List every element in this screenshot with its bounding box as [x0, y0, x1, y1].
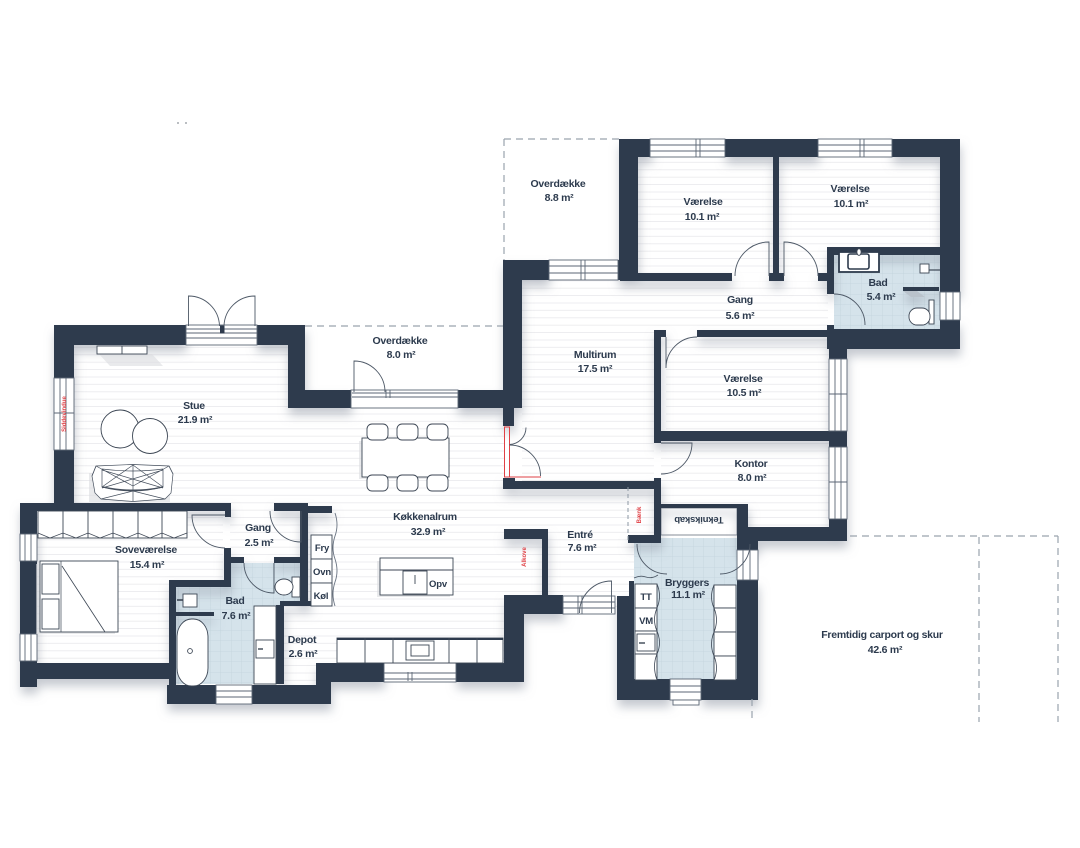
svg-text:11.1 m²: 11.1 m² — [671, 589, 706, 601]
svg-text:2.5 m²: 2.5 m² — [245, 537, 275, 549]
svg-text:Fremtidig carport og skur: Fremtidig carport og skur — [821, 629, 943, 641]
svg-text:10.1 m²: 10.1 m² — [685, 211, 720, 223]
svg-text:Stue: Stue — [183, 400, 205, 412]
svg-text:17.5 m²: 17.5 m² — [578, 363, 613, 375]
svg-text:Bad: Bad — [868, 277, 887, 289]
svg-text:Entré: Entré — [567, 529, 593, 541]
svg-text:Opv: Opv — [429, 579, 448, 590]
svg-text:7.6 m²: 7.6 m² — [568, 542, 598, 554]
svg-text:Siddevindue: Siddevindue — [62, 396, 68, 432]
svg-text:Værelse: Værelse — [683, 196, 723, 208]
svg-text:Køl: Køl — [314, 591, 329, 602]
svg-text:Teknikskab: Teknikskab — [674, 514, 723, 525]
svg-text:Gang: Gang — [727, 294, 753, 306]
svg-text:Bad: Bad — [225, 595, 244, 607]
svg-text:21.9 m²: 21.9 m² — [178, 414, 213, 426]
svg-text:Værelse: Værelse — [723, 373, 763, 385]
svg-text:Bryggers: Bryggers — [665, 577, 710, 589]
svg-text:Fry: Fry — [315, 543, 330, 554]
svg-text:Bænk: Bænk — [637, 506, 643, 523]
svg-text:Multirum: Multirum — [574, 349, 616, 361]
svg-text:10.5 m²: 10.5 m² — [727, 387, 762, 399]
svg-text:TT: TT — [640, 592, 652, 603]
svg-text:42.6 m²: 42.6 m² — [868, 644, 903, 656]
svg-text:Depot: Depot — [288, 634, 317, 646]
svg-text:15.4 m²: 15.4 m² — [130, 559, 165, 571]
svg-text:Overdække: Overdække — [531, 178, 586, 190]
svg-text:Køkkenalrum: Køkkenalrum — [393, 511, 457, 523]
svg-text:Kontor: Kontor — [735, 458, 768, 470]
svg-text:10.1 m²: 10.1 m² — [834, 198, 869, 210]
svg-text:7.6 m²: 7.6 m² — [222, 610, 252, 622]
svg-text:Gang: Gang — [245, 522, 271, 534]
svg-text:VM: VM — [639, 616, 653, 627]
svg-text:Soveværelse: Soveværelse — [115, 544, 177, 556]
svg-text:8.0 m²: 8.0 m² — [387, 349, 417, 361]
svg-text:5.4 m²: 5.4 m² — [867, 291, 897, 303]
svg-text:8.8 m²: 8.8 m² — [545, 192, 575, 204]
svg-text:5.6 m²: 5.6 m² — [726, 310, 756, 322]
svg-text:8.0 m²: 8.0 m² — [738, 472, 768, 484]
svg-text:32.9 m²: 32.9 m² — [411, 526, 446, 538]
svg-text:2.6 m²: 2.6 m² — [289, 648, 319, 660]
svg-text:Værelse: Værelse — [830, 183, 870, 195]
svg-text:Ovn: Ovn — [313, 567, 331, 578]
svg-text:Overdække: Overdække — [373, 335, 428, 347]
svg-text:Alkove: Alkove — [522, 547, 528, 567]
